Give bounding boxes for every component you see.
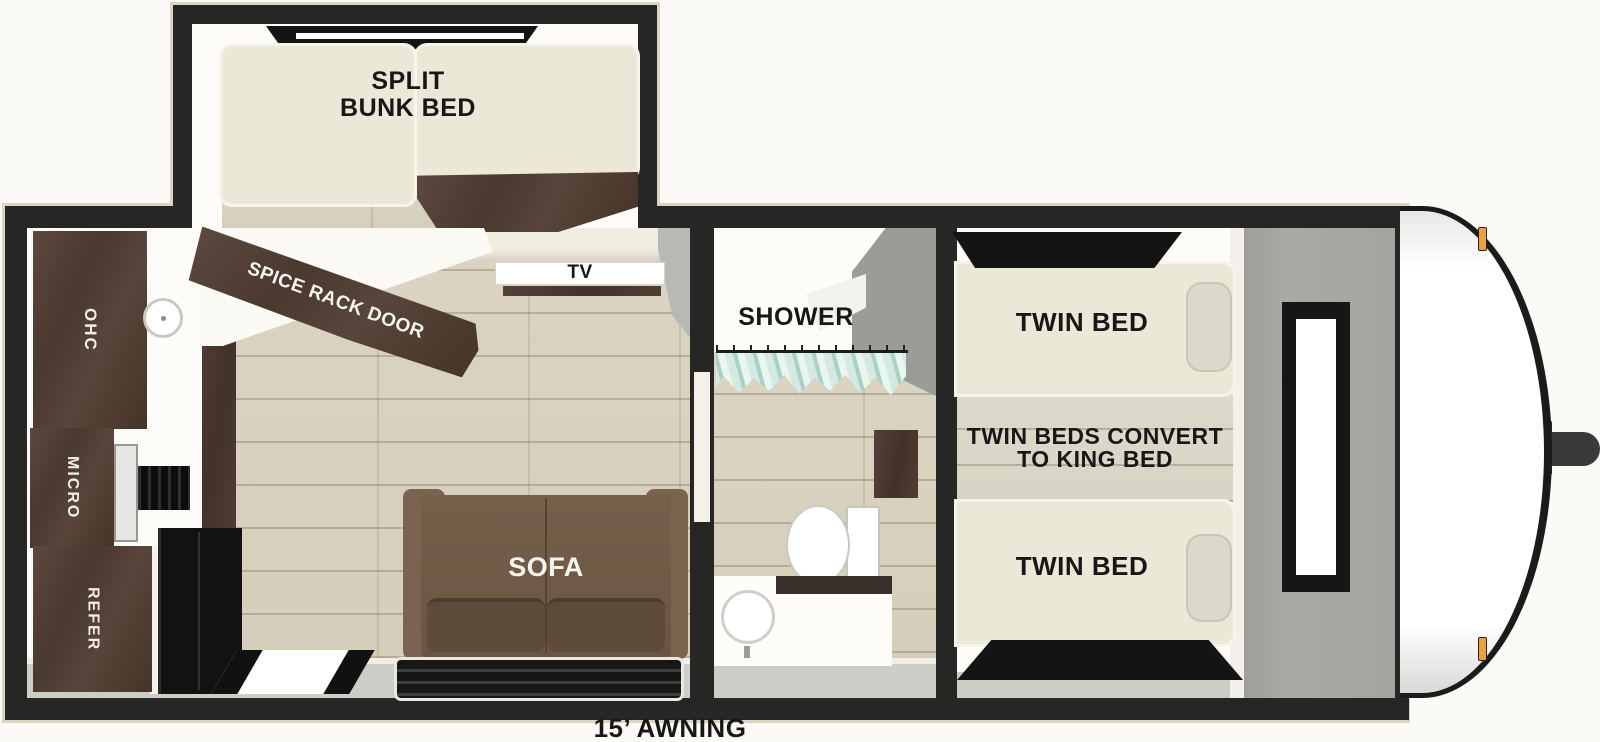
sofa-cushion-right (547, 598, 665, 652)
king-convert-label-line2: TO KING BED (950, 447, 1240, 472)
bathroom-bottom-strip (714, 664, 936, 698)
hitch-coupler (1548, 432, 1600, 466)
rv-floorplan: OHC MICRO REFER TV SOFA SHOWER (0, 0, 1600, 742)
bathroom-faucet (744, 646, 750, 658)
split-bunk-label-line1: SPLIT (308, 68, 508, 95)
twin-bed-front-label: TWIN BED (1002, 308, 1162, 336)
kitchen-faucet (161, 316, 166, 321)
black-base-cabinet-seam (198, 532, 200, 690)
marker-light-bottom (1478, 637, 1487, 661)
bathroom-sink (721, 590, 775, 644)
sofa-cushion-left (427, 598, 545, 652)
sofa-rug (397, 660, 681, 698)
pillow-rear (1186, 534, 1232, 622)
toilet-tank (846, 506, 880, 584)
pillow-front (1186, 282, 1232, 372)
microwave-appliance (114, 444, 138, 542)
bathroom-cabinet (874, 430, 918, 498)
shower-label: SHOWER (716, 304, 876, 331)
front-window-glass (1296, 319, 1336, 575)
cooktop-stove (138, 466, 190, 510)
marker-light-top (1478, 227, 1487, 251)
pocket-door (694, 372, 710, 522)
tv-label: TV (495, 263, 665, 284)
split-bunk-label-line2: BUNK BED (308, 95, 508, 122)
entry-door (211, 650, 374, 694)
wall-left (5, 206, 27, 720)
sofa-label: SOFA (476, 552, 616, 583)
vanity-counter-dark (776, 576, 892, 594)
tv-shelf (503, 286, 661, 296)
tv-cabinet (457, 228, 690, 262)
toilet-bowl (786, 505, 850, 585)
microwave-label: MICRO (30, 428, 114, 548)
awning-label: 15’ AWNING (540, 714, 800, 742)
overhead-cabinet-label: OHC (33, 231, 147, 429)
refrigerator-label: REFER (33, 546, 152, 692)
wall-top-right-segment (635, 206, 1407, 228)
shower-curtain-rod (716, 350, 908, 353)
bedroom-window-bottom (957, 640, 1243, 680)
bunk-room-window-glass (296, 33, 524, 39)
wall-top-left-segment (5, 206, 195, 228)
front-cap (1400, 211, 1544, 693)
bedroom-window-top (952, 232, 1182, 268)
twin-bed-rear-label: TWIN BED (1002, 552, 1162, 580)
